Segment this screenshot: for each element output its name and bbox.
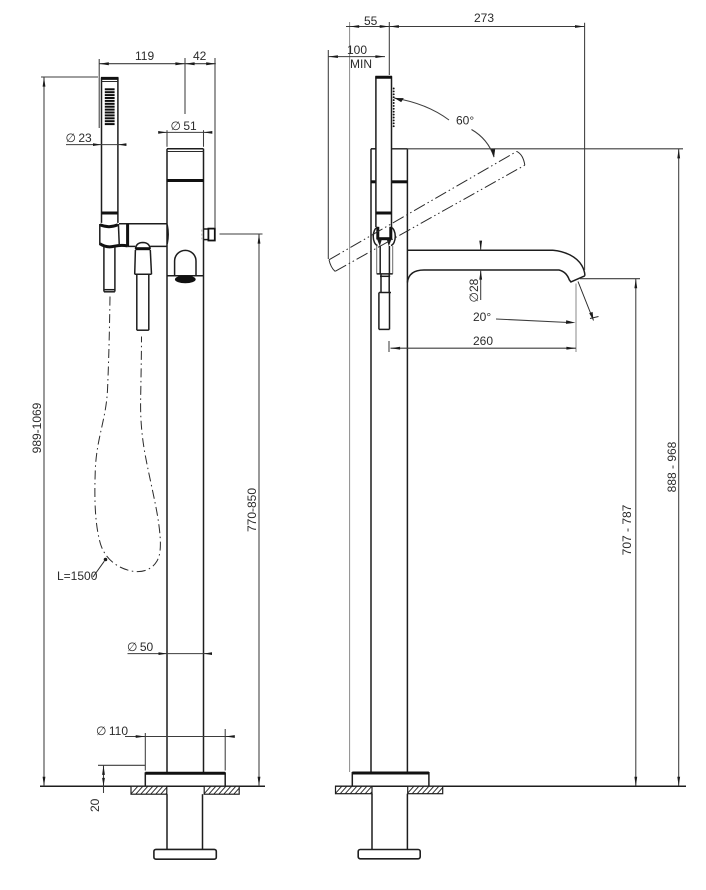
svg-text:55: 55	[364, 14, 378, 28]
svg-text:∅ 23: ∅ 23	[66, 131, 93, 145]
svg-text:L=1500: L=1500	[57, 569, 98, 583]
svg-text:∅ 50: ∅ 50	[127, 640, 154, 654]
svg-text:100: 100	[347, 43, 367, 57]
svg-text:20°: 20°	[473, 310, 491, 324]
svg-text:∅28: ∅28	[467, 278, 481, 302]
svg-text:20: 20	[88, 798, 102, 812]
svg-text:273: 273	[474, 11, 494, 25]
svg-text:42: 42	[193, 49, 207, 63]
svg-text:888 - 968: 888 - 968	[665, 441, 679, 492]
svg-text:60°: 60°	[456, 114, 474, 128]
svg-text:989-1069: 989-1069	[30, 402, 44, 453]
svg-text:∅ 51: ∅ 51	[171, 119, 198, 133]
svg-text:∅ 110: ∅ 110	[96, 724, 128, 738]
svg-text:770-850: 770-850	[245, 488, 259, 532]
svg-text:707 - 787: 707 - 787	[620, 504, 634, 555]
svg-text:119: 119	[135, 49, 154, 63]
svg-text:260: 260	[473, 334, 493, 348]
svg-text:MIN: MIN	[350, 57, 372, 71]
